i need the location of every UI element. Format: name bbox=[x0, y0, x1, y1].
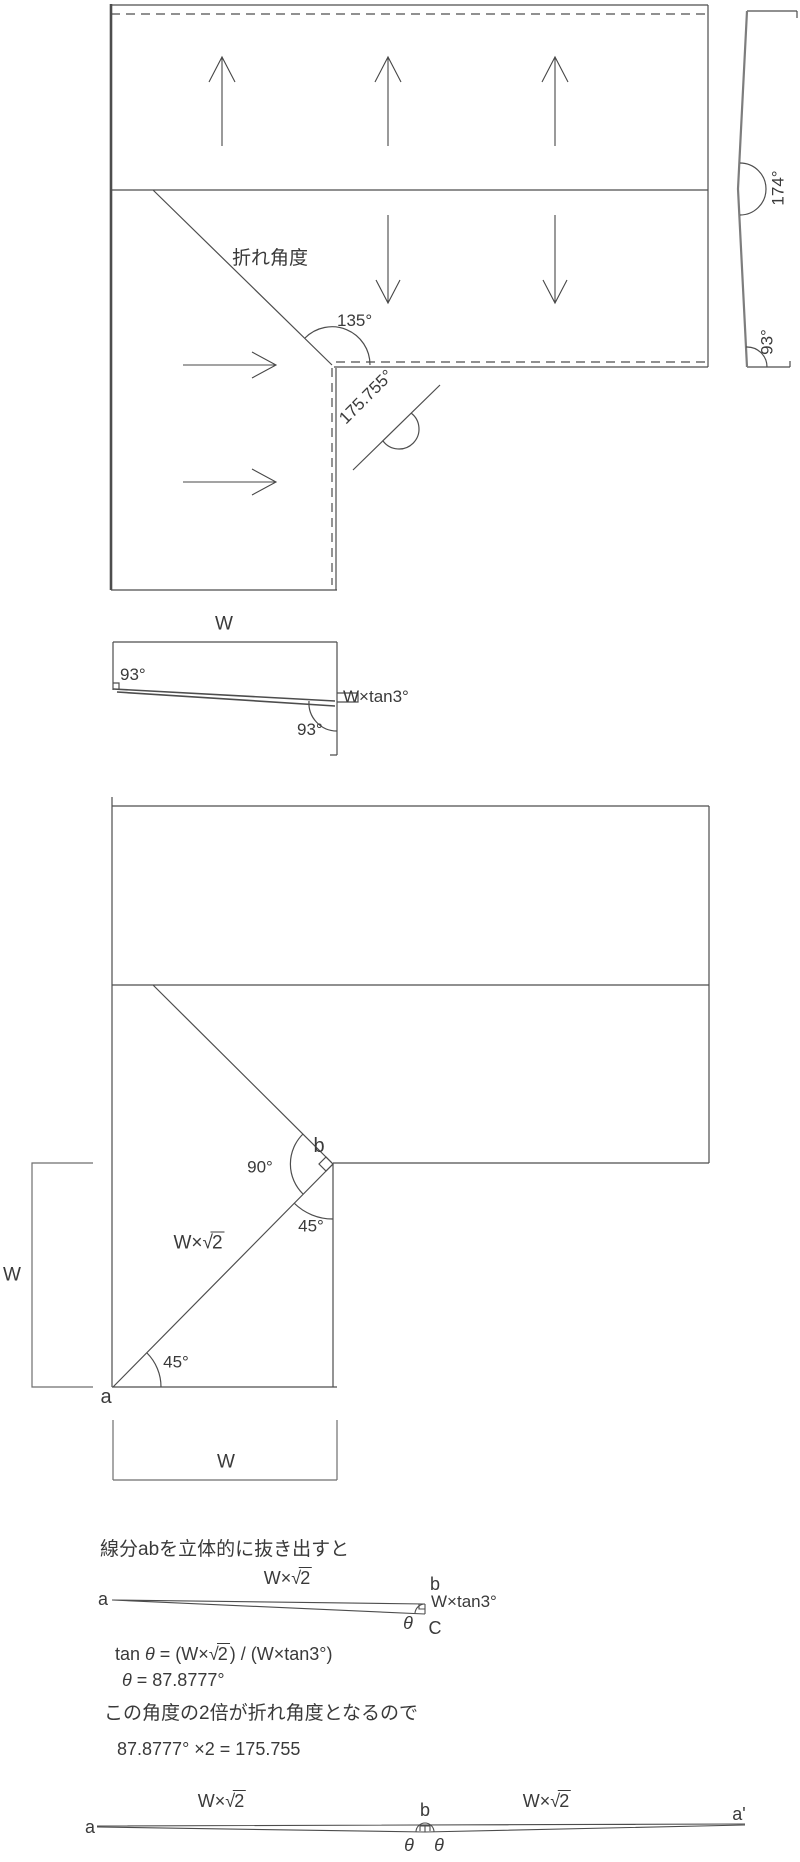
tan-formula-p1: tan bbox=[115, 1644, 145, 1664]
point-a-label: a bbox=[100, 1387, 111, 1407]
sqrt-radicand: 2 bbox=[211, 1232, 225, 1254]
sqrt-radicand: 2 bbox=[217, 1643, 230, 1664]
top-shape bbox=[111, 4, 708, 590]
width-w-label: W bbox=[215, 615, 233, 634]
diagonal-length-label: W×√2 bbox=[173, 1234, 224, 1253]
right-arrows bbox=[183, 352, 276, 495]
extract-c-label: C bbox=[429, 1619, 442, 1637]
w-bottom-label: W bbox=[217, 1453, 235, 1472]
slanted-sheet bbox=[113, 689, 335, 706]
angle-45-b-label: 45° bbox=[298, 1218, 324, 1235]
mirror-lines bbox=[97, 1824, 745, 1832]
extract-hyp-prefix: W× bbox=[264, 1568, 292, 1588]
angle-174-arc bbox=[740, 163, 766, 215]
angle-90-arc bbox=[290, 1134, 303, 1194]
fold-angle-label: 折れ角度 bbox=[232, 249, 308, 268]
extract-a-label: a bbox=[98, 1590, 108, 1608]
angle-90-label: 90° bbox=[247, 1159, 273, 1176]
result-text: 87.8777° ×2 = 175.755 bbox=[117, 1740, 300, 1758]
mirror-left-prefix: W× bbox=[198, 1791, 226, 1811]
w-left-label: W bbox=[3, 1266, 21, 1285]
sqrt-radicand: 2 bbox=[233, 1790, 246, 1811]
conclusion-text: この角度の2倍が折れ角度となるので bbox=[104, 1704, 418, 1723]
angle-135-label: 135° bbox=[337, 312, 372, 329]
mirror-theta-left-label: θ bbox=[404, 1836, 414, 1854]
angle-174-label: 174° bbox=[770, 170, 787, 205]
top-shape-dashed-lines bbox=[111, 14, 708, 585]
tan-formula: tan θ = (W×√2) / (W×tan3°) bbox=[115, 1645, 332, 1663]
theta-formula-rest: = 87.8777° bbox=[132, 1670, 225, 1690]
angle-45-a-label: 45° bbox=[163, 1354, 189, 1371]
width-angle-right-label: 93° bbox=[297, 721, 323, 738]
mirror-theta-right-label: θ bbox=[434, 1836, 444, 1854]
w-brackets bbox=[32, 1163, 337, 1480]
mirror-a-label: a bbox=[85, 1818, 95, 1836]
point-b-label: b bbox=[313, 1136, 324, 1156]
extract-figure bbox=[112, 1600, 425, 1614]
top-shape-outline bbox=[111, 5, 708, 590]
sqrt-radicand: 2 bbox=[299, 1567, 312, 1588]
extract-heading: 線分abを立体的に抜き出すと bbox=[100, 1540, 349, 1559]
side-angle-93-label: 93° bbox=[759, 329, 776, 355]
extract-triangle bbox=[112, 1600, 425, 1614]
width-angle-left-label: 93° bbox=[120, 666, 146, 683]
tan-formula-p2: = (W× bbox=[155, 1644, 209, 1664]
extract-hyp-label: W×√2 bbox=[264, 1569, 312, 1587]
tan-formula-theta: θ bbox=[145, 1644, 155, 1664]
side-profile bbox=[738, 11, 797, 367]
mirror-left-length-label: W×√2 bbox=[198, 1792, 246, 1810]
extract-offset-label: W×tan3° bbox=[431, 1593, 497, 1610]
down-arrows bbox=[376, 215, 567, 303]
theta-formula-sym: θ bbox=[122, 1670, 132, 1690]
angle-175-arc bbox=[383, 413, 419, 449]
b-right-angle-diamond bbox=[319, 1157, 333, 1171]
angle-135-arc bbox=[305, 327, 370, 365]
mirror-figure bbox=[97, 1823, 745, 1832]
sqrt-radicand: 2 bbox=[558, 1790, 571, 1811]
diagonal-length-prefix: W× bbox=[173, 1233, 202, 1254]
up-arrows bbox=[209, 57, 568, 146]
extract-b-label: b bbox=[430, 1575, 440, 1593]
mirror-right-prefix: W× bbox=[523, 1791, 551, 1811]
extract-theta-label: θ bbox=[403, 1614, 413, 1632]
theta-formula: θ = 87.8777° bbox=[122, 1671, 225, 1689]
unfold-outline bbox=[112, 797, 709, 1387]
diagram-canvas bbox=[0, 0, 800, 1862]
angle-45-a-arc bbox=[147, 1353, 161, 1387]
width-offset-label: W×tan3° bbox=[343, 688, 409, 705]
tan-formula-p3: ) / (W×tan3°) bbox=[230, 1644, 333, 1664]
mirror-a-prime-label: a' bbox=[732, 1805, 745, 1823]
side-profile-bent-edge bbox=[738, 11, 747, 367]
mirror-b-label: b bbox=[420, 1801, 430, 1819]
mirror-right-length-label: W×√2 bbox=[523, 1792, 571, 1810]
unfold-shape bbox=[32, 797, 709, 1480]
fold-angle-drawing: 折れ角度 135° 175.755° 174° 93° W 93° W×tan3… bbox=[0, 0, 800, 1862]
